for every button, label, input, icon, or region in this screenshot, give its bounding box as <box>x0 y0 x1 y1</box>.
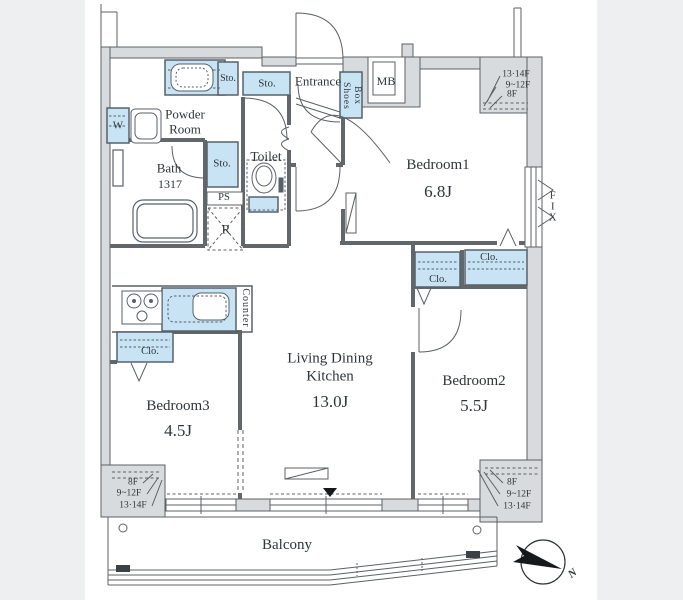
refrigerator-space <box>208 208 243 250</box>
meter-box <box>368 57 405 103</box>
washing-machine-icon <box>131 109 161 143</box>
washbasin-icon <box>171 64 213 91</box>
pipe-space-box <box>207 192 243 205</box>
floorplan-drawing <box>0 0 683 600</box>
balcony-outline <box>101 517 497 585</box>
fix-window <box>525 167 553 247</box>
stove-icon <box>122 291 162 324</box>
bedroom3-sliding-door <box>238 430 243 493</box>
bedroom1-shelf <box>346 193 356 233</box>
compass-icon <box>513 540 565 584</box>
bathtub-icon <box>113 150 197 242</box>
floorplan-page: Powder Room Bath 1317 Toilet Entrance MB… <box>0 0 683 600</box>
entrance-threshold <box>296 58 343 118</box>
ldk-board <box>285 468 328 479</box>
balcony-windows <box>166 494 468 514</box>
view-direction-marker <box>323 488 337 497</box>
